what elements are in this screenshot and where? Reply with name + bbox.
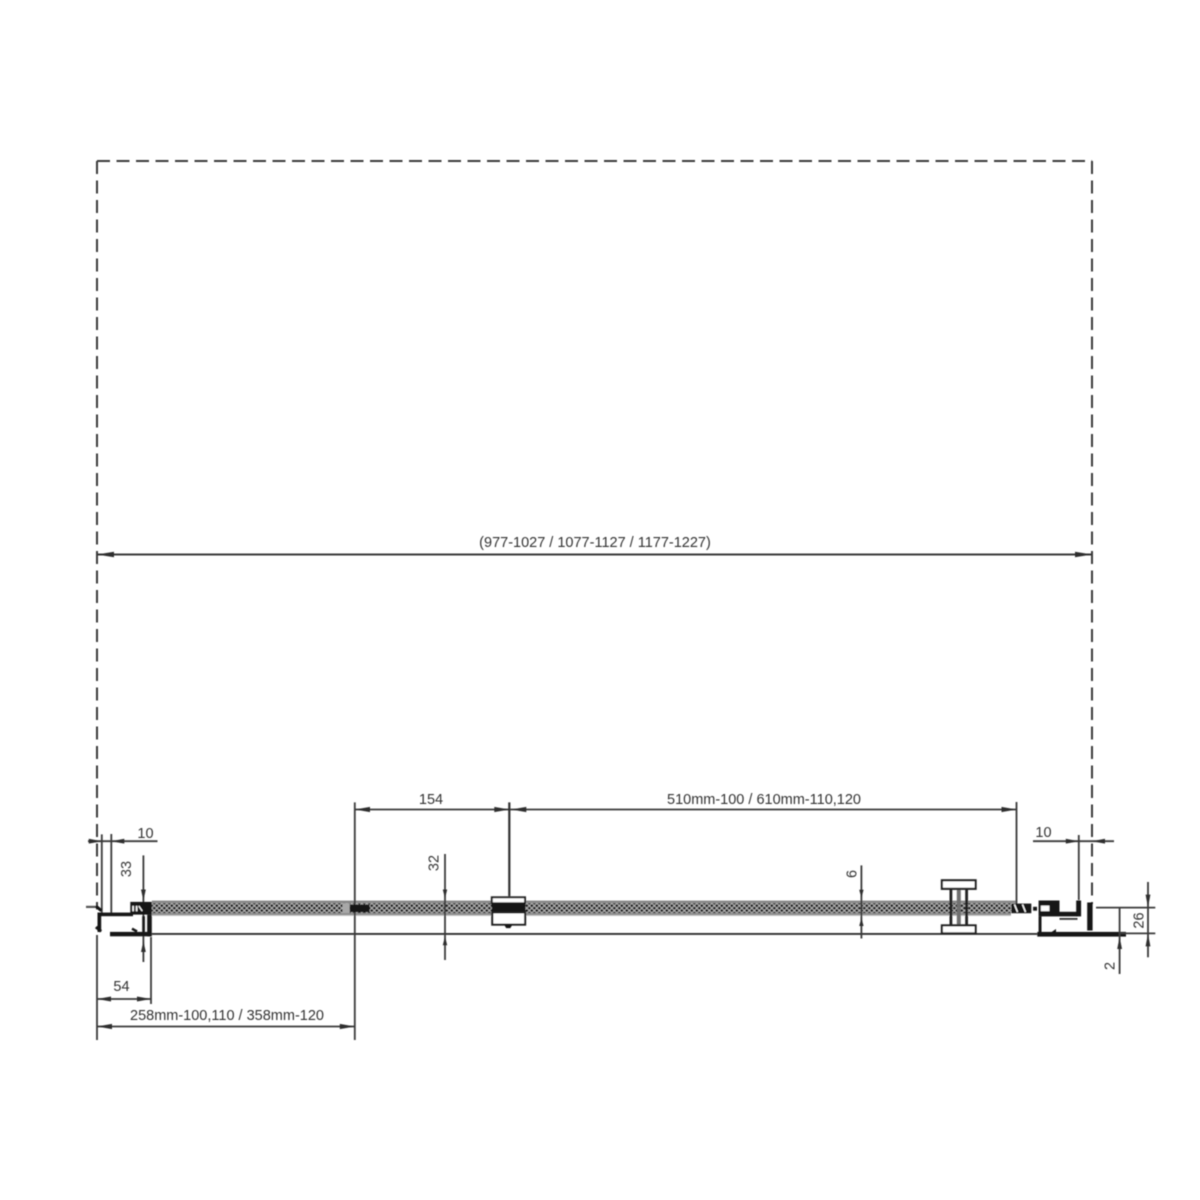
svg-text:(977-1027 / 1077-1127 / 1177-1: (977-1027 / 1077-1127 / 1177-1227) <box>479 535 711 551</box>
svg-text:54: 54 <box>113 979 129 995</box>
svg-text:6: 6 <box>845 870 861 878</box>
svg-text:2: 2 <box>1103 962 1119 970</box>
svg-text:10: 10 <box>137 826 153 842</box>
svg-text:510mm-100 / 610mm-110,120: 510mm-100 / 610mm-110,120 <box>667 792 861 808</box>
svg-text:154: 154 <box>419 792 443 808</box>
svg-text:10: 10 <box>1035 825 1051 841</box>
svg-text:32: 32 <box>427 855 443 871</box>
svg-text:33: 33 <box>119 861 135 877</box>
svg-text:26: 26 <box>1132 912 1148 928</box>
svg-text:258mm-100,110 / 358mm-120: 258mm-100,110 / 358mm-120 <box>130 1008 324 1024</box>
